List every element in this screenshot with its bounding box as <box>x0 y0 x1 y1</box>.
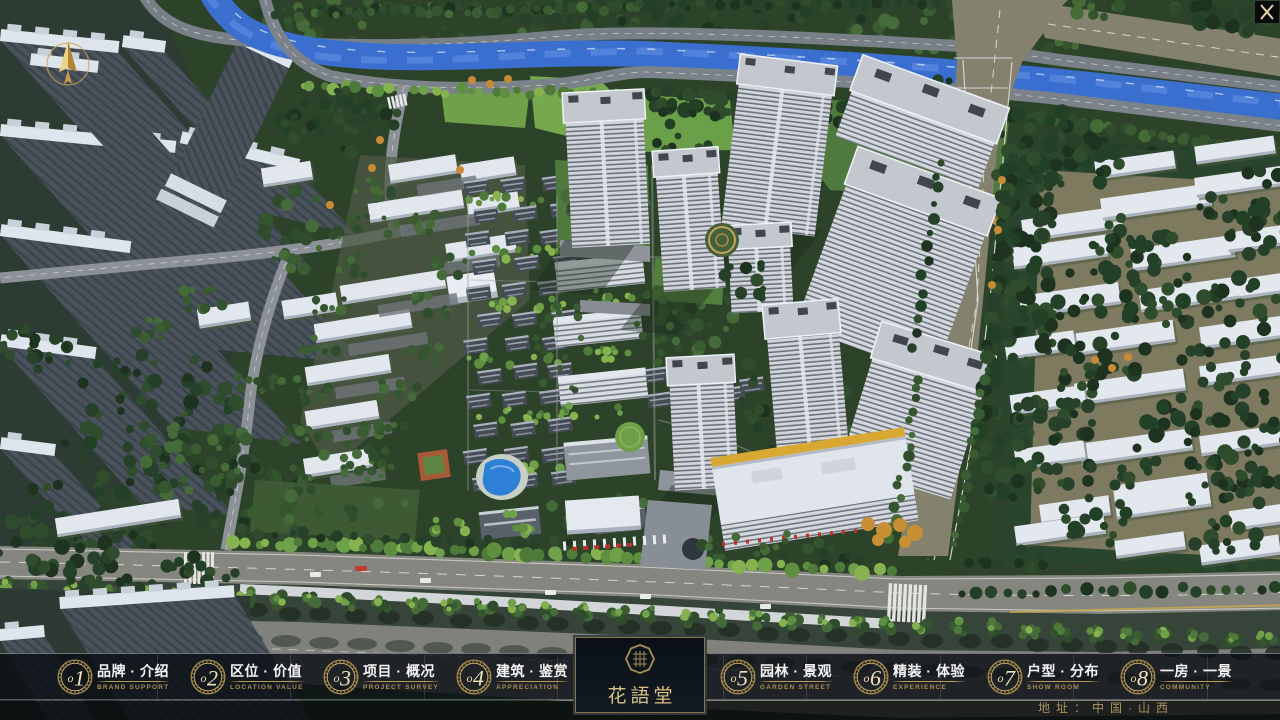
svg-text:o: o <box>467 671 473 685</box>
svg-text:8: 8 <box>1137 666 1148 691</box>
svg-text:o: o <box>201 671 207 685</box>
svg-text:7: 7 <box>1004 666 1016 691</box>
svg-text:4: 4 <box>473 666 484 691</box>
svg-text:o: o <box>998 671 1004 685</box>
svg-text:o: o <box>864 671 870 685</box>
svg-text:o: o <box>731 671 737 685</box>
svg-text:2: 2 <box>207 666 218 691</box>
svg-text:o: o <box>68 671 74 685</box>
svg-text:6: 6 <box>870 666 881 691</box>
svg-text:o: o <box>334 671 340 685</box>
svg-text:1: 1 <box>74 666 85 691</box>
svg-text:3: 3 <box>339 666 351 691</box>
svg-text:5: 5 <box>737 666 748 691</box>
svg-text:o: o <box>1131 671 1137 685</box>
